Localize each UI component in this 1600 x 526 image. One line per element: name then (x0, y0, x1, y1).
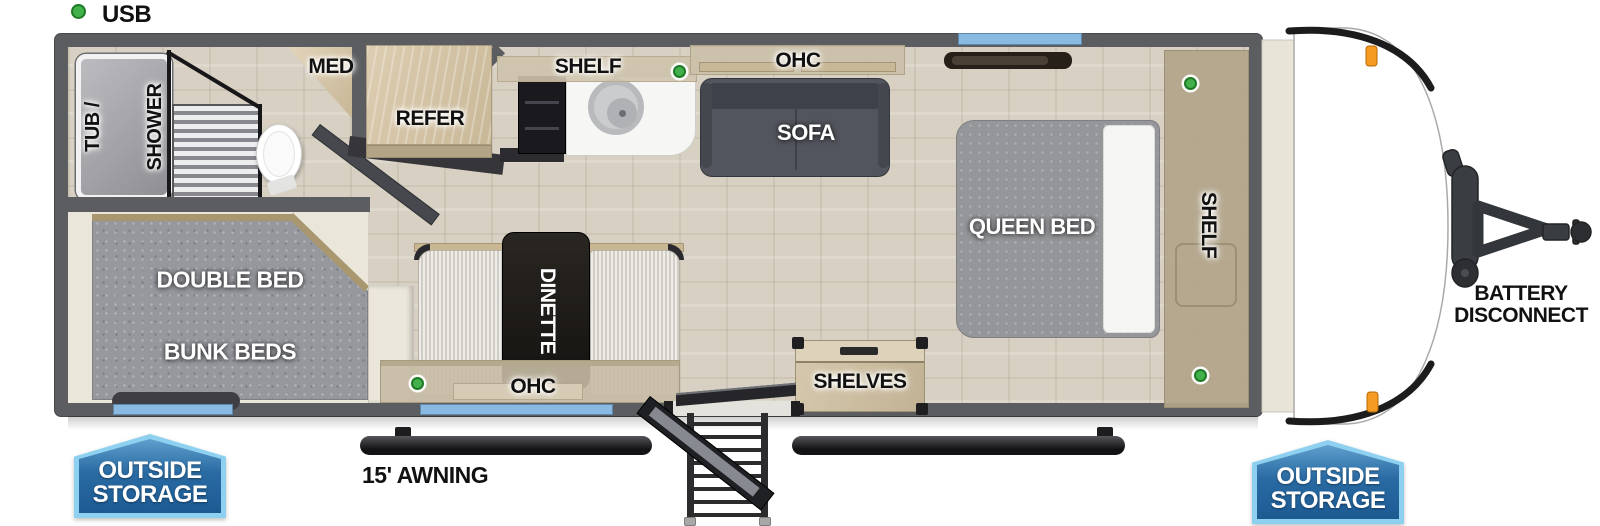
kitchen-shelf-label: SHELF (555, 55, 621, 79)
queen-bed-pillow (1103, 125, 1155, 333)
cabinet-trim (381, 361, 679, 366)
shelves-handle (840, 347, 878, 355)
sofa-back (707, 83, 883, 109)
wall-shelf-label: SHELF (1196, 192, 1220, 258)
front-inner-wall (1262, 40, 1294, 412)
sofa-arm (701, 83, 712, 168)
sink-drain (619, 110, 626, 117)
dinette-label: DINETTE (535, 268, 559, 354)
usb-port-icon (411, 377, 424, 390)
window (958, 33, 1082, 45)
med-label: MED (308, 55, 353, 79)
step-foot (759, 517, 771, 526)
awning-label: 15' AWNING (362, 462, 488, 489)
toilet-seat (263, 131, 295, 177)
awning-rail-left (360, 436, 652, 455)
stove-shelf-line (525, 101, 559, 104)
window (420, 404, 613, 415)
awning-rail-right (792, 436, 1125, 455)
bed-overhead-cabinet (944, 52, 1072, 69)
battery-disconnect-label: BATTERY DISCONNECT (1440, 283, 1600, 328)
kitchen-wall-stub (352, 47, 366, 147)
usb-port-icon (1194, 369, 1207, 382)
rv-floorplan: USB (0, 0, 1600, 526)
corner-bracket (792, 337, 804, 349)
kitchen-sink (588, 79, 644, 135)
tub-shower-label: TUB / SHOWER (41, 84, 207, 171)
marker-light-top (1366, 46, 1377, 66)
toilet (256, 124, 302, 184)
a-frame (1478, 206, 1547, 252)
refrigerator-base (366, 145, 492, 158)
kitchen-counter (566, 76, 696, 156)
shelves-label: SHELVES (814, 370, 907, 394)
corner-bracket (916, 337, 928, 349)
wheel-hub (1461, 269, 1469, 277)
sofa-arm (878, 83, 889, 168)
stove-shelf-line (525, 127, 559, 130)
cabinet-door (952, 56, 1048, 65)
usb-port-icon (1184, 77, 1197, 90)
corner-bracket (916, 403, 928, 415)
step-foot (684, 517, 696, 526)
refer-label: REFER (396, 107, 465, 131)
ohc-bottom-label: OHC (510, 375, 555, 399)
usb-legend-icon (71, 4, 86, 19)
stove (518, 76, 566, 154)
coupler-ball (1571, 222, 1591, 242)
sofa-label: SOFA (777, 120, 835, 146)
bathroom-wall (68, 197, 370, 212)
door-jamb (791, 401, 800, 416)
hitch-assembly (1441, 148, 1591, 287)
ohc-top-label: OHC (775, 49, 820, 73)
coupler (1543, 224, 1569, 240)
usb-port-icon (673, 65, 686, 78)
outside-storage-badge-left: OUTSIDE STORAGE (74, 434, 226, 518)
bunk-label: DOUBLE BED BUNK BEDS (156, 220, 303, 411)
usb-legend-label: USB (102, 1, 151, 29)
outside-storage-badge-right: OUTSIDE STORAGE (1252, 440, 1404, 524)
marker-light-bottom (1367, 392, 1378, 412)
front-cap (1294, 28, 1448, 424)
queen-bed-label: QUEEN BED (969, 214, 1095, 240)
